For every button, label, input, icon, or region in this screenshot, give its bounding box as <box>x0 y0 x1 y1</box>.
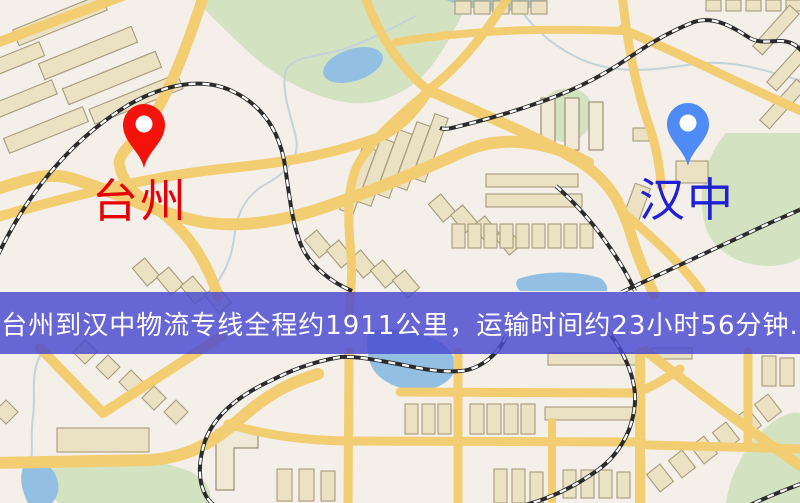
destination-label: 汉中 <box>639 173 735 227</box>
destination-pin-hole <box>680 115 697 132</box>
logistics-route-map: 台州 汉中 台州到汉中物流专线全程约1911公里，运输时间约23小时56分钟. <box>0 0 800 503</box>
route-info-text: 台州到汉中物流专线全程约1911公里，运输时间约23小时56分钟. <box>1 305 799 342</box>
origin-pin-icon[interactable] <box>123 104 165 168</box>
map-canvas: 台州 汉中 <box>0 0 800 503</box>
origin-label: 台州 <box>92 174 188 228</box>
origin-pin-body[interactable] <box>123 104 165 168</box>
destination-pin-body[interactable] <box>667 103 709 166</box>
route-info-banner: 台州到汉中物流专线全程约1911公里，运输时间约23小时56分钟. <box>0 292 800 354</box>
origin-pin-hole <box>136 116 153 133</box>
destination-pin-icon[interactable] <box>667 103 709 166</box>
